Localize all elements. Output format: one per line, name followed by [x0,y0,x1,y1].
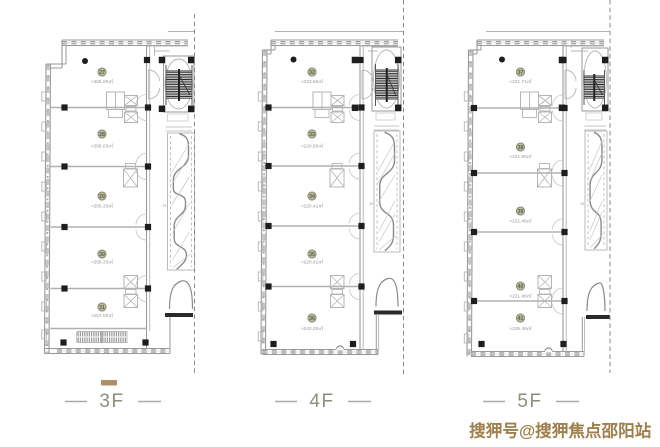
svg-text:搜狎号@搜狎焦点邵阳站: 搜狎号@搜狎焦点邵阳站 [469,420,652,440]
svg-text:34: 34 [309,194,315,200]
svg-text:≈221.90㎡: ≈221.90㎡ [509,153,531,160]
svg-text:≈235.46㎡: ≈235.46㎡ [509,325,531,332]
svg-text:≈220.41㎡: ≈220.41㎡ [301,259,323,266]
svg-text:28: 28 [99,132,105,138]
svg-text:32: 32 [309,70,315,76]
svg-text:40: 40 [518,284,524,290]
svg-text:39: 39 [518,209,524,215]
svg-text:≈256.33㎡: ≈256.33㎡ [91,259,113,266]
svg-text:≈221.46㎡: ≈221.46㎡ [509,218,531,225]
svg-text:25: 25 [580,202,584,206]
svg-text:4F: 4F [309,391,334,412]
svg-text:38: 38 [518,145,524,151]
svg-text:29: 29 [99,194,105,200]
svg-text:25: 25 [163,204,167,208]
svg-text:≈256.03㎡: ≈256.03㎡ [91,143,113,150]
svg-text:3F: 3F [99,391,124,412]
svg-text:41: 41 [518,316,524,322]
svg-text:≈221.46㎡: ≈221.46㎡ [509,293,531,300]
svg-text:5F: 5F [517,391,542,412]
svg-text:≈223.65㎡: ≈223.65㎡ [301,78,323,85]
svg-text:≈256.33㎡: ≈256.33㎡ [91,203,113,210]
svg-text:≈220.41㎡: ≈220.41㎡ [301,203,323,210]
svg-text:≈221.71㎡: ≈221.71㎡ [509,78,531,85]
svg-text:36: 36 [309,316,315,322]
svg-text:≈220.85㎡: ≈220.85㎡ [301,143,323,150]
svg-text:≈255.00㎡: ≈255.00㎡ [91,78,113,85]
svg-text:37: 37 [518,70,524,76]
svg-text:≈157.00㎡: ≈157.00㎡ [91,312,113,319]
svg-text:≈243.28㎡: ≈243.28㎡ [301,325,323,332]
svg-text:35: 35 [309,252,315,258]
svg-text:30: 30 [99,252,105,258]
svg-text:27: 27 [99,70,105,76]
svg-text:31: 31 [99,305,105,311]
svg-text:33: 33 [309,132,315,138]
svg-text:25: 25 [369,202,373,206]
